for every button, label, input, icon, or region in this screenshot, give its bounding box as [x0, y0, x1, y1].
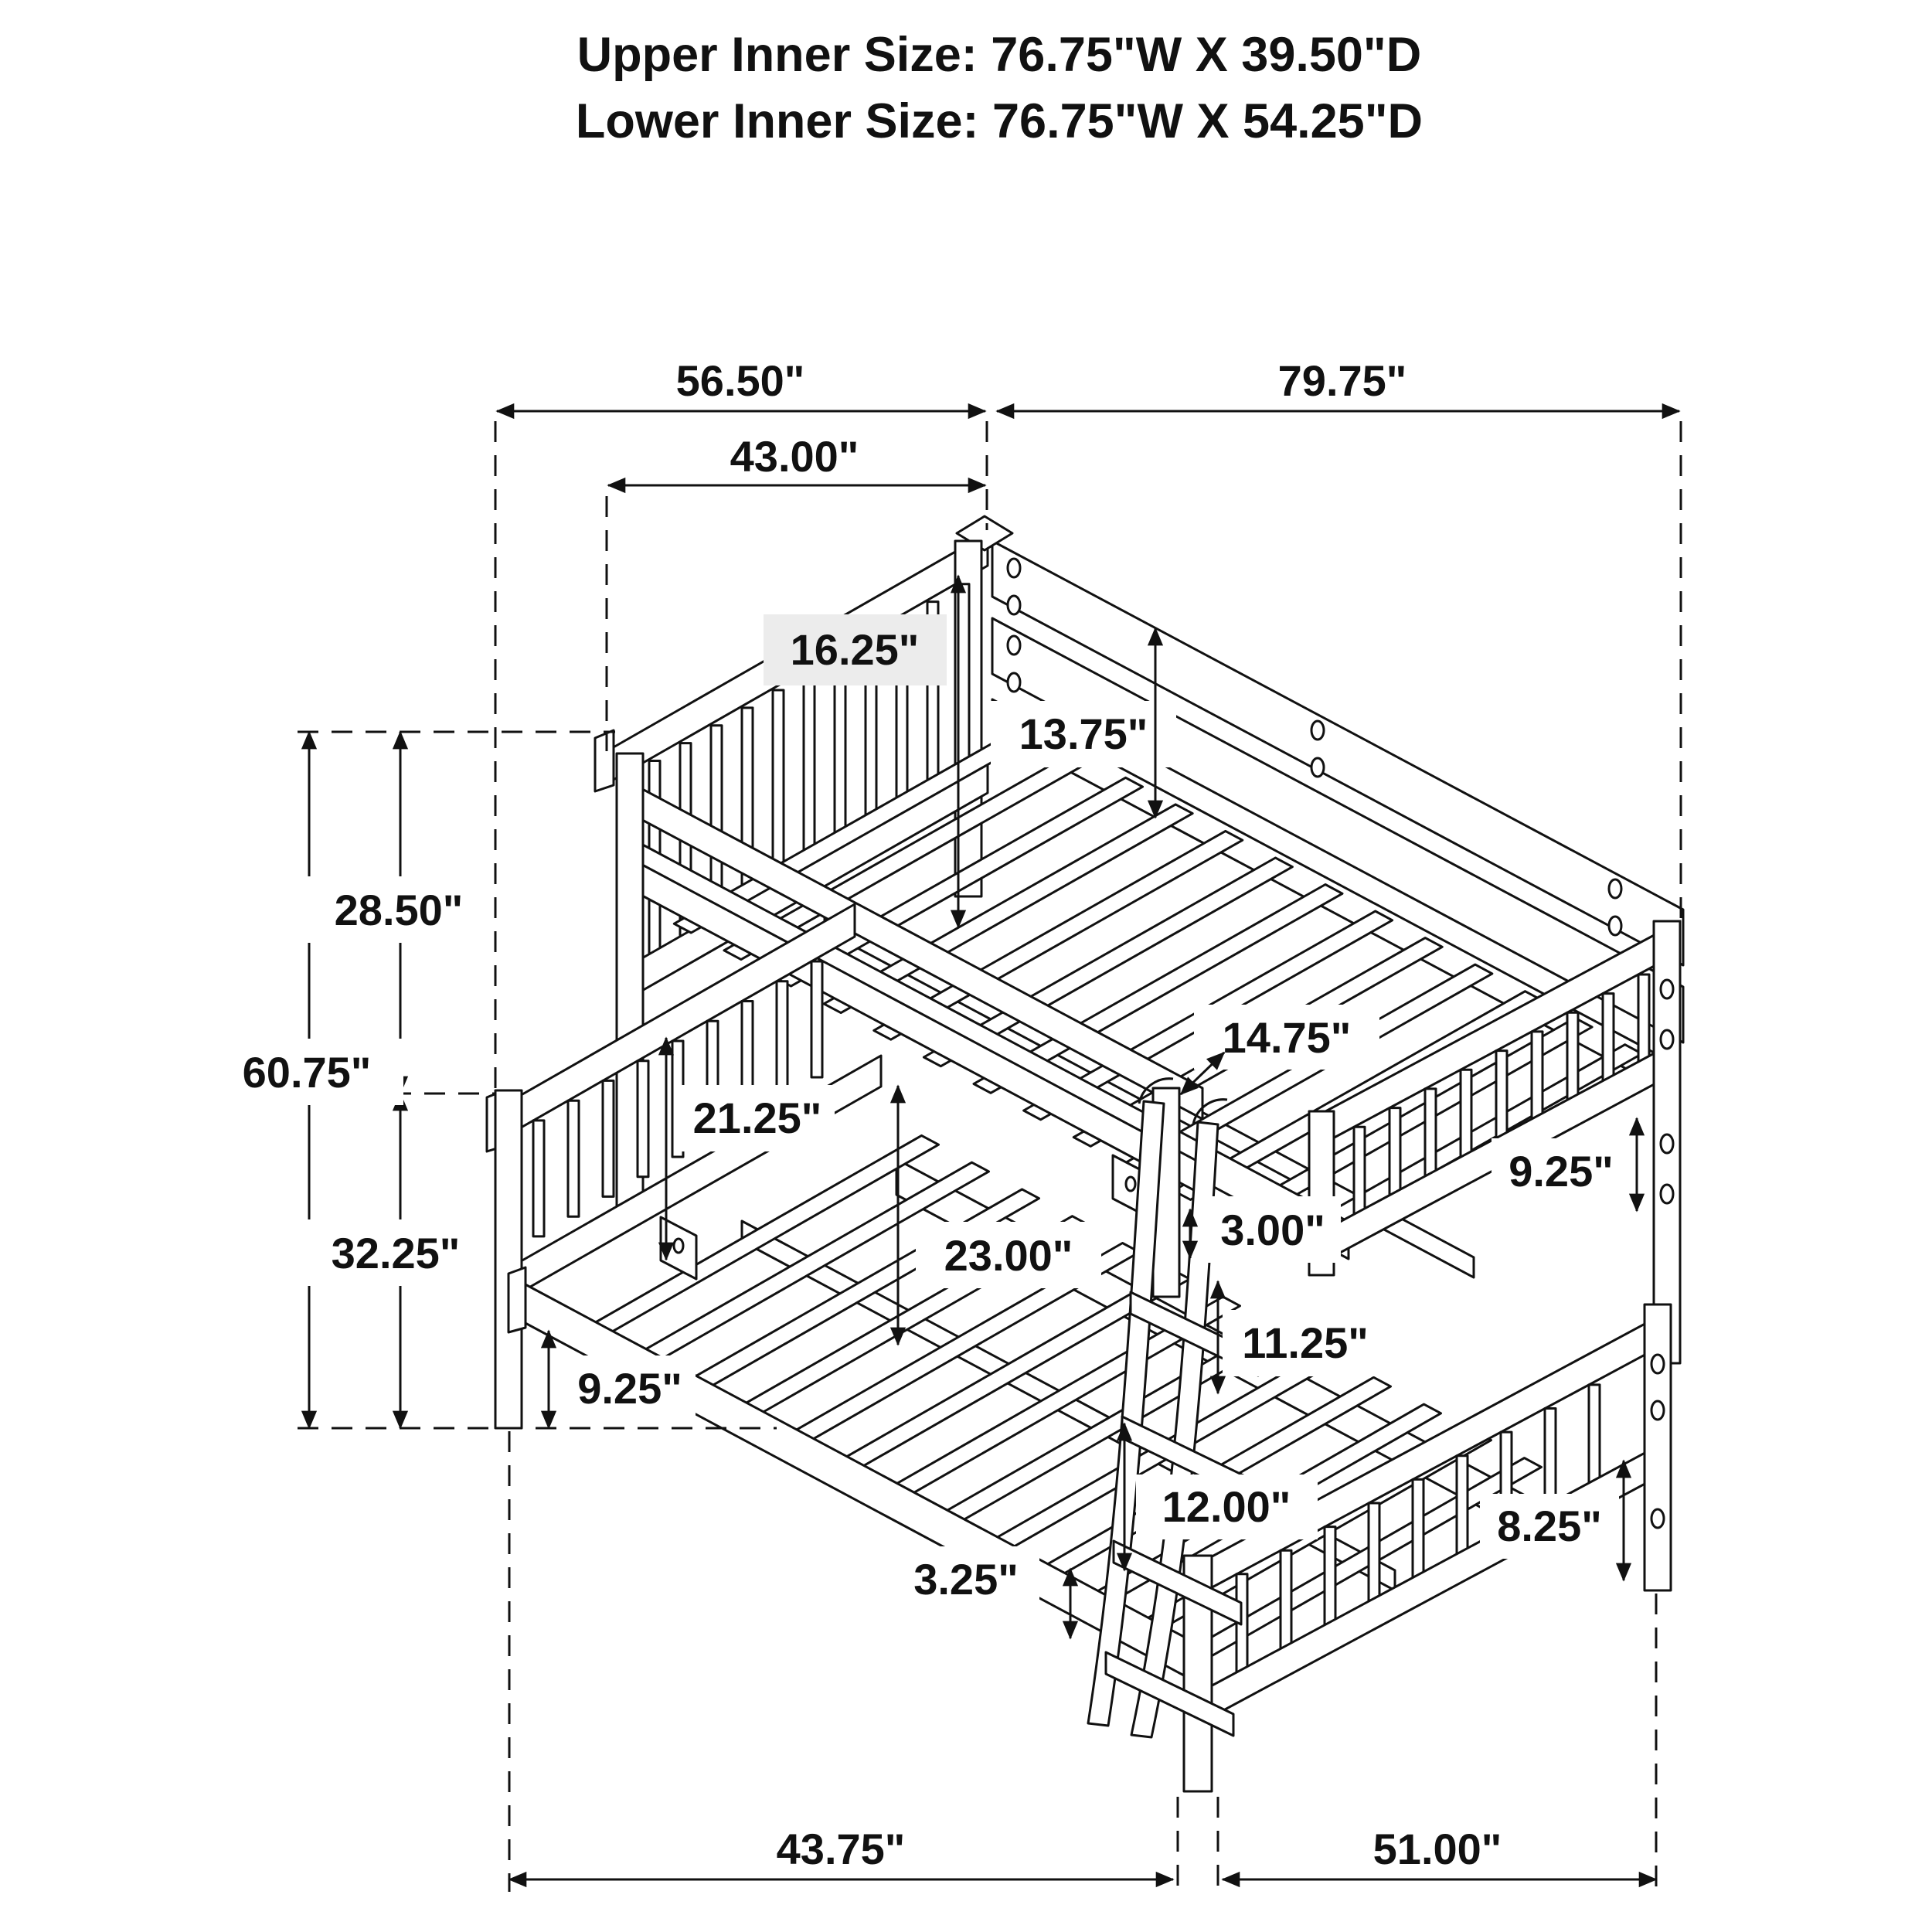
screw-hole: [1008, 673, 1020, 692]
baluster: [1389, 1108, 1400, 1197]
screw-hole: [1609, 879, 1621, 898]
baluster: [1532, 1032, 1543, 1121]
screw-hole: [1661, 1185, 1673, 1203]
dim-label-top-width-right: 79.75": [1278, 356, 1407, 405]
title-lower-inner-size: Lower Inner Size: 76.75"W X 54.25"D: [576, 94, 1423, 148]
dim-label-rung-spacing: 11.25": [1242, 1318, 1369, 1367]
baluster: [1589, 1385, 1600, 1485]
dim-label-lower-rail: 9.25": [577, 1364, 682, 1413]
dim-label-bottom-width-right: 51.00": [1373, 1825, 1502, 1873]
baluster: [638, 1061, 648, 1177]
dim-label-upper-rail: 13.75": [1019, 709, 1148, 758]
screw-hole: [1651, 1355, 1664, 1373]
screw-hole: [1311, 758, 1324, 777]
baluster: [1603, 994, 1614, 1083]
dim-label-top-width-left: 56.50": [676, 356, 805, 405]
baluster: [773, 690, 784, 883]
dim-label-upper-footboard-rail: 9.25": [1509, 1147, 1614, 1196]
baluster: [1413, 1479, 1423, 1580]
baluster: [804, 672, 815, 866]
dim-label-lower-section: 32.25": [332, 1229, 461, 1277]
bunk-bed-dimension-diagram: Upper Inner Size: 76.75"W X 39.50"D Lowe…: [0, 0, 1932, 1932]
baluster: [568, 1100, 579, 1216]
dim-label-rail-to-rail: 21.25": [693, 1094, 822, 1142]
screw-hole: [1008, 559, 1020, 577]
baluster: [533, 1121, 544, 1236]
dim-label-upper-section: 28.50": [335, 886, 464, 934]
baluster: [1354, 1127, 1365, 1216]
lower-front-head-post: [495, 1090, 522, 1428]
dim-label-bottom-width-left: 43.75": [777, 1825, 906, 1873]
baluster: [1638, 975, 1649, 1063]
dim-label-bottom-step: 3.25": [913, 1555, 1019, 1604]
lower-footboard-right-post: [1645, 1304, 1671, 1590]
dim-label-guard-rail-gap: 14.75": [1223, 1013, 1352, 1062]
screw-hole: [1311, 721, 1324, 740]
screw-hole: [1008, 636, 1020, 655]
lower-front-rail-cap: [509, 1267, 526, 1332]
baluster: [603, 1080, 614, 1196]
dim-label-bunk-clearance: 23.00": [944, 1231, 1073, 1280]
screw-hole: [1008, 596, 1020, 614]
screw-hole: [1651, 1509, 1664, 1528]
upper-headboard-beam-cap: [595, 730, 614, 791]
screw-hole: [1609, 917, 1621, 935]
dim-label-headboard-width: 43.00": [730, 432, 859, 481]
baluster: [1567, 1012, 1578, 1101]
dim-label-upper-headboard: 16.25": [791, 625, 920, 674]
screw-hole: [1651, 1401, 1664, 1420]
baluster: [1496, 1051, 1507, 1140]
baluster: [777, 981, 787, 1097]
baluster: [1425, 1089, 1436, 1178]
dim-label-ladder-step: 12.00": [1162, 1482, 1291, 1531]
bracket-hole: [1126, 1177, 1135, 1191]
baluster: [1457, 1456, 1468, 1556]
dim-label-lower-footboard-rail: 8.25": [1497, 1502, 1602, 1550]
screw-hole: [1661, 980, 1673, 998]
baluster: [811, 961, 822, 1077]
title-upper-inner-size: Upper Inner Size: 76.75"W X 39.50"D: [577, 28, 1422, 82]
baluster: [958, 584, 969, 777]
baluster: [1369, 1503, 1379, 1604]
dim-label-total-height: 60.75": [243, 1048, 372, 1097]
baluster: [1325, 1527, 1335, 1628]
baluster: [1461, 1070, 1471, 1158]
baluster: [1281, 1550, 1291, 1651]
dim-label-rail-thickness: 3.00": [1220, 1206, 1325, 1254]
screw-hole: [1661, 1134, 1673, 1153]
bracket-hole: [674, 1239, 683, 1253]
diagram-canvas: Upper Inner Size: 76.75"W X 39.50"D Lowe…: [0, 0, 1932, 1932]
screw-hole: [1661, 1030, 1673, 1049]
